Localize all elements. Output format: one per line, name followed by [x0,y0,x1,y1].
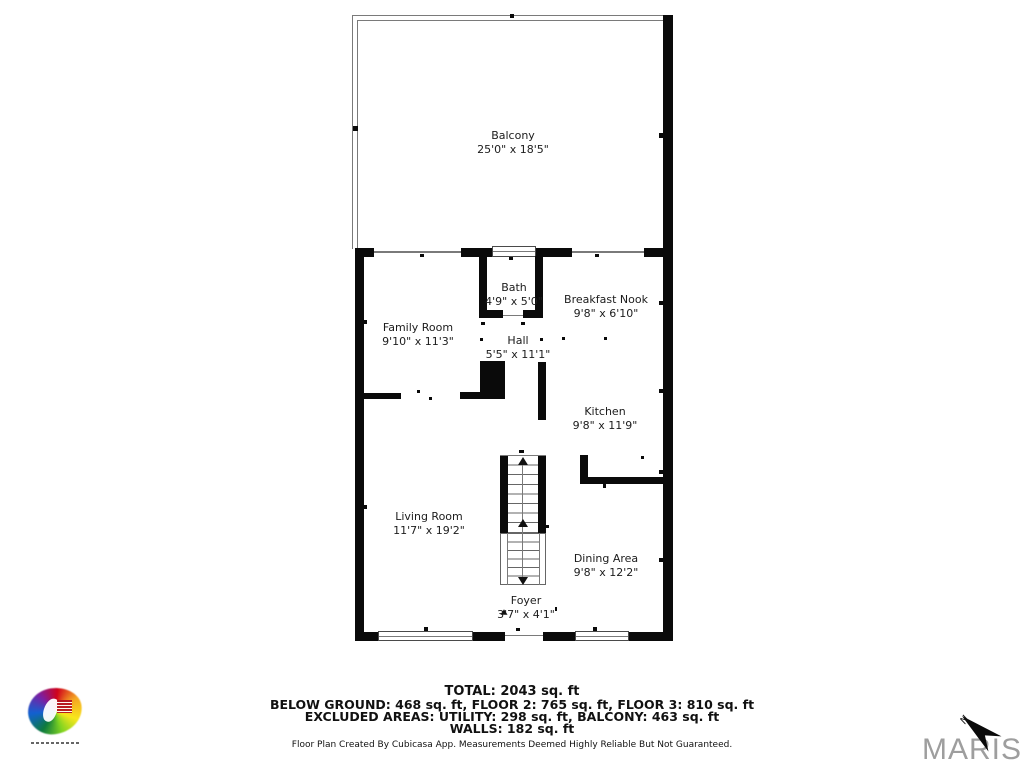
wall-tick [480,338,483,341]
wall-tick [424,627,428,631]
wall-top-seg [644,248,673,257]
room-label-living-room: Living Room 11'7" x 19'2" [393,510,465,538]
stairs-down-arrow [518,577,528,585]
wall-tick [546,525,549,528]
wall-bottom-seg [629,632,673,641]
balcony-rail-inner-left [357,20,358,249]
wall-tick [364,505,367,509]
room-name: Family Room [382,321,454,335]
wall-top-seg [461,248,492,257]
room-label-hall: Hall 5'5" x 11'1" [486,334,551,362]
room-dims: 25'0" x 18'5" [477,143,549,157]
wall-bottom-seg [543,632,575,641]
wall-tick [364,320,367,324]
room-dims: 9'8" x 12'2" [574,566,639,580]
room-dims: 5'5" x 11'1" [486,348,551,362]
room-name: Balcony [477,129,549,143]
wall-tick [659,470,663,474]
room-name: Hall [486,334,551,348]
stairs-up-arrow [518,519,528,527]
window-bottom-left [378,631,473,641]
wall-tick [659,389,663,393]
room-name: Kitchen [573,405,638,419]
wall-tick [509,257,513,260]
top-opening-line [572,251,644,253]
balcony-rail-outer-top [352,15,664,16]
wall-tick [659,133,663,138]
bath-wall-bottom [479,310,503,318]
room-name: Breakfast Nook [564,293,648,307]
entry-door-opening-line [505,635,543,636]
room-dims: 3'7" x 4'1" [497,608,555,622]
disclaimer: Floor Plan Created By Cubicasa App. Meas… [0,740,1024,750]
stairs-up-arrow [518,457,528,465]
wall-tick [353,126,358,131]
logo-text-block [57,700,72,713]
wall-tick [562,337,565,340]
fireplace-block [480,361,505,399]
wall-tick [603,484,606,488]
wall-tick [595,254,599,257]
wall-right [663,15,673,641]
room-label-balcony: Balcony 25'0" x 18'5" [477,129,549,157]
summary-walls: WALLS: 182 sq. ft [0,721,1024,736]
wall-tick [659,301,663,305]
wall-tick [417,390,420,393]
bath-door-line [503,315,523,316]
stairs-lower-rail-right [539,533,540,585]
wall-left [355,248,364,641]
wall-tick [641,456,644,459]
balcony-rail-outer-left [352,15,353,249]
stairs-top-tick [519,450,524,453]
room-name: Foyer [497,594,555,608]
foyer-mark [555,607,557,611]
north-compass-icon: N [947,704,1005,756]
stairs-upper-wall-right [538,456,546,533]
wall-tick [510,14,514,18]
window-top [492,246,536,257]
wall-top-seg [355,248,374,257]
window-bottom-right [575,631,629,641]
balcony-rail-inner-top [357,20,664,21]
floor-plan-page: Balcony 25'0" x 18'5" Bath 4'9" x 5'0" B… [0,0,1024,768]
room-label-foyer: Foyer 3'7" x 4'1" [497,594,555,622]
wall-tick [604,337,607,340]
room-dims: 9'8" x 6'10" [564,307,648,321]
room-name: Living Room [393,510,465,524]
room-name: Bath [485,281,543,295]
room-label-breakfast-nook: Breakfast Nook 9'8" x 6'10" [564,293,648,321]
wall-tick [521,322,525,325]
room-dims: 4'9" x 5'0" [485,295,543,309]
agency-logo [26,686,88,746]
room-label-family-room: Family Room 9'10" x 11'3" [382,321,454,349]
room-label-dining-area: Dining Area 9'8" x 12'2" [574,552,639,580]
bath-wall-bottom [523,310,543,318]
room-name: Dining Area [574,552,639,566]
family-living-wall [355,393,401,399]
top-opening-line [374,251,461,253]
stairs-upper-wall-left [500,456,508,533]
wall-tick [481,322,485,325]
wall-bottom-seg [473,632,505,641]
wall-tick [659,558,663,562]
hall-kitchen-wall [538,362,546,420]
room-dims: 9'10" x 11'3" [382,335,454,349]
wall-tick [593,627,597,631]
room-dims: 9'8" x 11'9" [573,419,638,433]
wall-tick [516,628,520,631]
wall-tick [420,254,424,257]
kitchen-dining-wall-horiz [580,477,673,484]
room-dims: 11'7" x 19'2" [393,524,465,538]
room-label-kitchen: Kitchen 9'8" x 11'9" [573,405,638,433]
fireplace-foot [460,392,480,399]
logo-caption-illegible [31,742,81,744]
wall-bottom-seg [355,632,378,641]
wall-tick [429,397,432,400]
room-label-bath: Bath 4'9" x 5'0" [485,281,543,309]
